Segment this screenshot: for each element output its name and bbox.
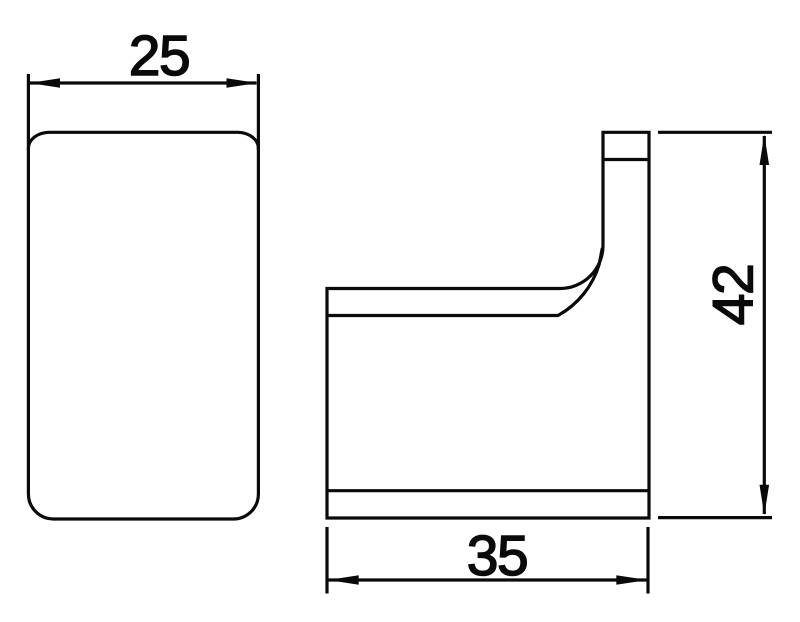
svg-text:42: 42 bbox=[702, 265, 766, 325]
svg-text:25: 25 bbox=[129, 24, 189, 88]
svg-text:35: 35 bbox=[467, 524, 527, 588]
